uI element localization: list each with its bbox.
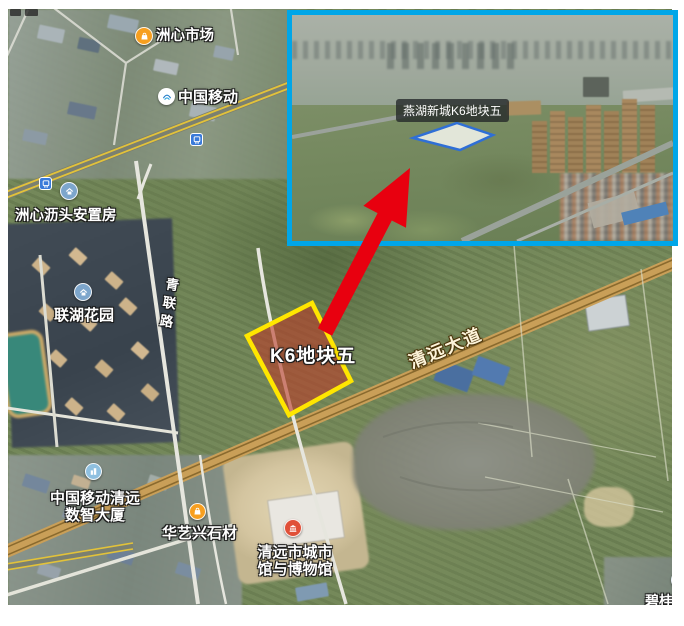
poi-label-cmcc-tower[interactable]: 中国移动清远 数智大厦 bbox=[42, 491, 148, 525]
partial-map-label bbox=[10, 9, 21, 16]
bus-station-icon[interactable] bbox=[39, 177, 52, 190]
minor-road bbox=[40, 255, 57, 447]
poi-label-line2: 馆与博物馆 bbox=[255, 562, 335, 579]
figure-page: 洲心市场 中国移动 洲心沥头安置房 联湖花园 青联路 中国移动清远 数智大厦 华… bbox=[0, 0, 684, 626]
k6-plot-label: K6地块五 bbox=[270, 346, 356, 367]
inset-overlay bbox=[292, 15, 673, 241]
bus-station-icon[interactable] bbox=[190, 133, 203, 146]
building-icon[interactable] bbox=[85, 463, 102, 480]
poi-label-museum[interactable]: 清远市城市 馆与博物馆 bbox=[255, 545, 335, 579]
minor-road bbox=[8, 407, 178, 433]
photo-road bbox=[462, 143, 673, 241]
poi-label-lianhu-garden[interactable]: 联湖花园 bbox=[54, 308, 114, 325]
shopping-bag-icon[interactable] bbox=[135, 27, 153, 45]
poi-label-line1: 中国移动清远 bbox=[42, 491, 148, 508]
poi-label-market[interactable]: 洲心市场 bbox=[156, 28, 214, 44]
inset-plot-polygon bbox=[413, 123, 493, 150]
museum-icon[interactable] bbox=[284, 519, 302, 537]
aerial-photo-inset: .inset .bld{position:absolute;} 燕湖新城K6地块… bbox=[287, 10, 678, 246]
house-icon[interactable] bbox=[60, 182, 78, 200]
poi-label-partial[interactable]: 碧桂园 bbox=[645, 594, 672, 605]
poi-label-line2: 数智大厦 bbox=[42, 508, 148, 525]
poi-label-line1: 清远市城市 bbox=[255, 545, 335, 562]
field-path bbox=[478, 245, 668, 604]
poi-label-stone[interactable]: 华艺兴石材 bbox=[162, 526, 237, 543]
poi-label-china-mobile[interactable]: 中国移动 bbox=[178, 90, 238, 107]
partial-map-label bbox=[25, 9, 38, 16]
house-icon[interactable] bbox=[74, 283, 92, 301]
shopping-bag-icon[interactable] bbox=[189, 503, 206, 520]
inset-caption: 燕湖新城K6地块五 bbox=[396, 99, 509, 122]
poi-label-resettlement[interactable]: 洲心沥头安置房 bbox=[15, 208, 117, 224]
china-mobile-logo-icon[interactable] bbox=[158, 88, 175, 105]
